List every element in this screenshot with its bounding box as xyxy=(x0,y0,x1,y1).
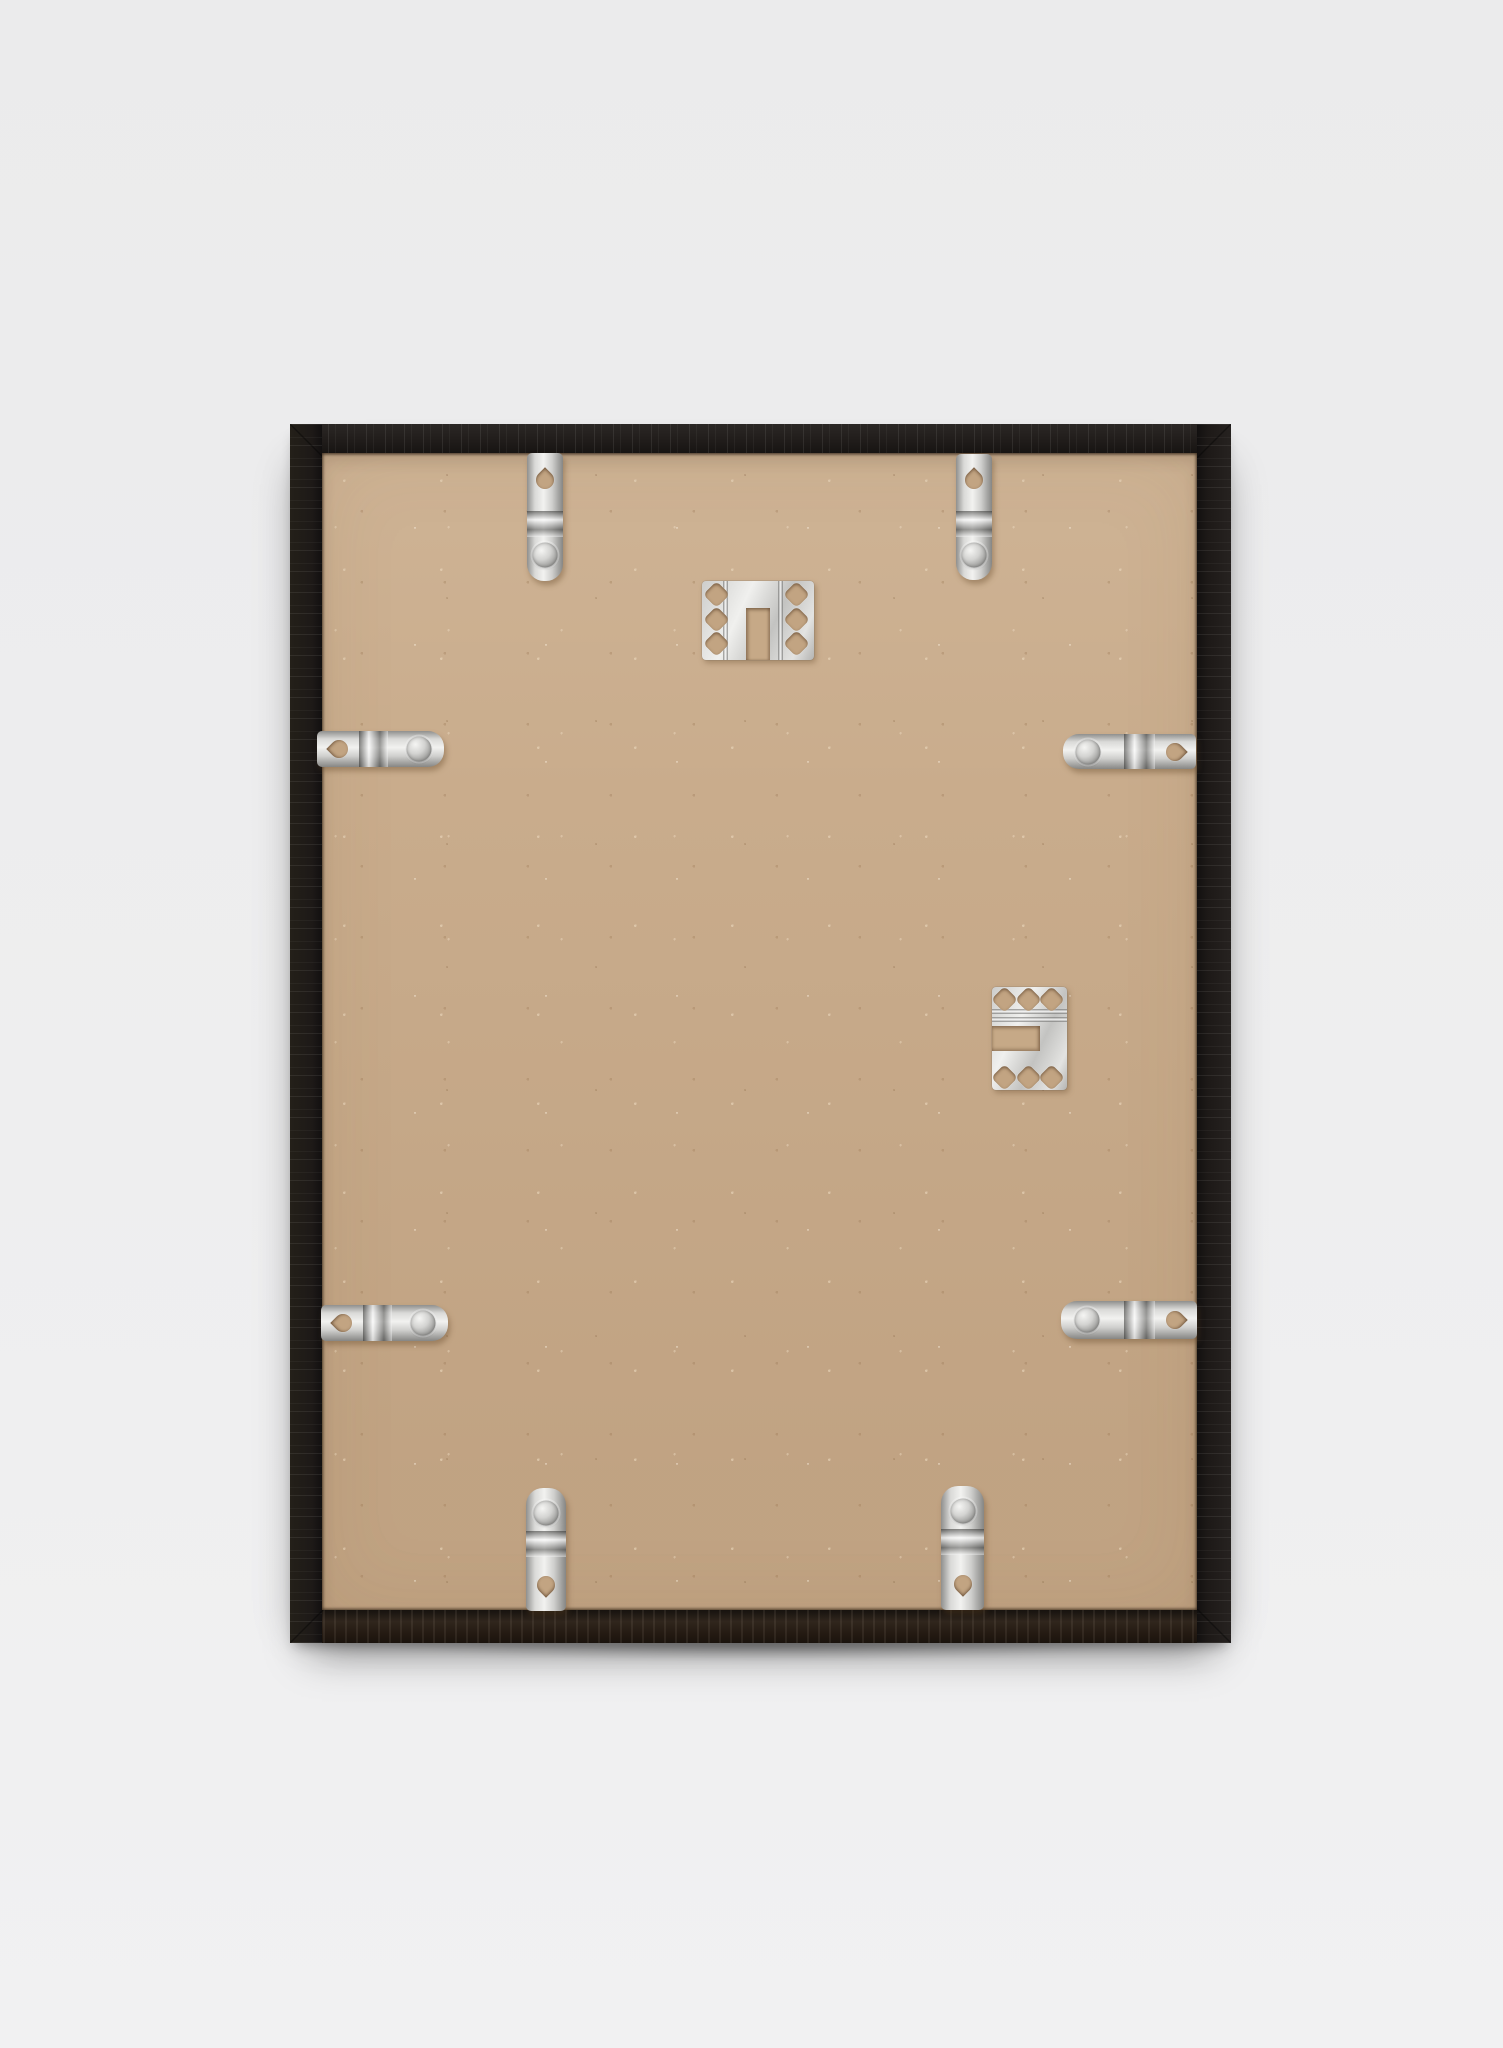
bracket-ridge xyxy=(778,581,783,660)
spring-clip-left-lower xyxy=(321,1305,448,1341)
spring-clip-bottom-left xyxy=(526,1488,566,1611)
spring-clip-top-left xyxy=(527,453,563,581)
spring-clip-right-upper xyxy=(1063,734,1196,769)
clip-bend xyxy=(359,731,388,767)
clip-bend xyxy=(956,511,992,537)
rivet xyxy=(1074,1308,1099,1333)
bracket-slot xyxy=(992,1026,1040,1051)
rivet xyxy=(950,1498,975,1523)
spring-clip-top-right xyxy=(956,454,992,580)
frame-mitre-top-left xyxy=(290,424,324,458)
frame-mitre-bottom-left xyxy=(290,1609,324,1643)
rivet xyxy=(534,1500,559,1525)
spring-clip-right-lower xyxy=(1061,1301,1197,1339)
frame-rail-top xyxy=(290,424,1231,453)
clip-bend xyxy=(363,1305,392,1341)
rivet xyxy=(406,737,431,762)
rivet xyxy=(410,1311,435,1336)
frame-rail-left xyxy=(290,424,322,1643)
frame-floor-shadow xyxy=(276,1641,1244,1671)
clip-bend xyxy=(1124,734,1155,769)
frame-rail-right xyxy=(1197,424,1231,1643)
clip-bend xyxy=(527,511,563,538)
picture-frame xyxy=(290,424,1231,1643)
rivet xyxy=(1076,739,1101,764)
rivet xyxy=(533,543,558,568)
spring-clip-bottom-right xyxy=(941,1486,984,1610)
hanger-bracket-right xyxy=(992,987,1067,1090)
spring-clip-left-upper xyxy=(317,731,444,767)
hanger-bracket-top xyxy=(702,581,814,660)
frame-mitre-top-right xyxy=(1197,424,1231,458)
photo-frame-back-scene xyxy=(0,0,1503,2048)
clip-bend xyxy=(1124,1301,1155,1339)
frame-mitre-bottom-right xyxy=(1197,1609,1231,1643)
rivet xyxy=(962,542,987,567)
clip-bend xyxy=(526,1531,566,1557)
bracket-ridge xyxy=(992,1017,1067,1022)
bracket-slot xyxy=(746,608,770,660)
frame-rail-bottom xyxy=(290,1610,1231,1643)
clip-bend xyxy=(941,1529,984,1555)
